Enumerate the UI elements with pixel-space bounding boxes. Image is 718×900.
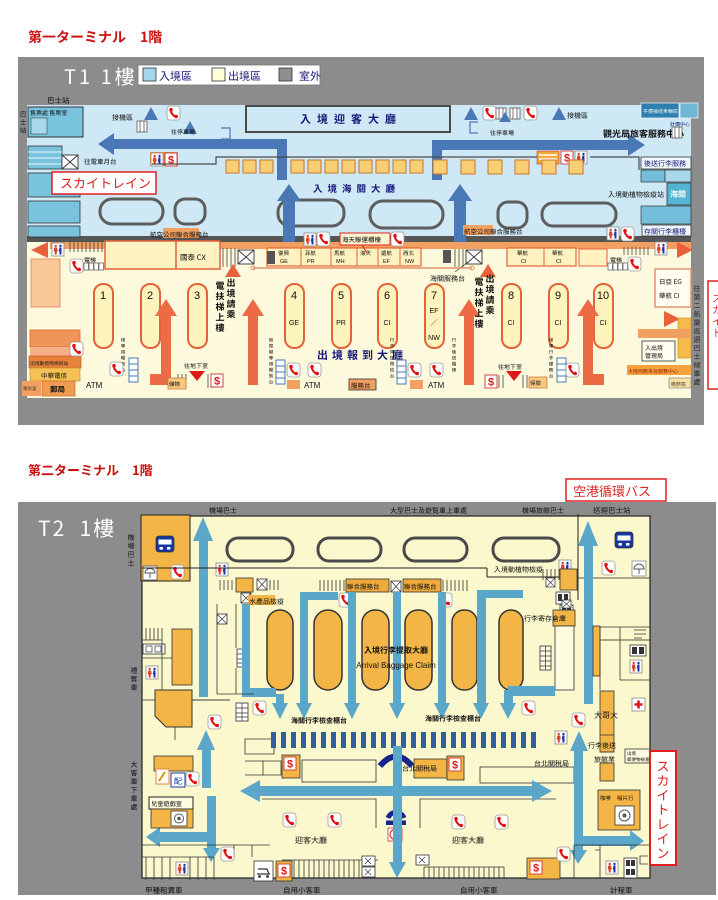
svg-text:10: 10 <box>597 290 609 302</box>
svg-text:CI: CI <box>600 320 607 327</box>
svg-text:2: 2 <box>147 290 153 302</box>
svg-text:CI: CI <box>556 259 562 265</box>
svg-text:ATM: ATM <box>304 381 321 390</box>
svg-text:GE: GE <box>280 259 288 265</box>
svg-text:1: 1 <box>100 290 106 302</box>
svg-text:EF: EF <box>383 259 391 265</box>
svg-text:CI: CI <box>384 320 391 327</box>
svg-text:Arrival Baggage Claim: Arrival Baggage Claim <box>356 661 436 670</box>
svg-text:ATM: ATM <box>86 381 103 390</box>
svg-text:EF: EF <box>430 308 439 315</box>
svg-text:NW: NW <box>428 335 440 342</box>
svg-text:PR: PR <box>307 259 315 265</box>
svg-text:GE: GE <box>289 320 299 327</box>
svg-text:MH: MH <box>336 259 345 265</box>
svg-text:8: 8 <box>508 290 514 302</box>
svg-text:3: 3 <box>194 290 200 302</box>
svg-text:CI: CI <box>508 320 515 327</box>
svg-text:CI: CI <box>555 320 562 327</box>
svg-text:PR: PR <box>336 320 346 327</box>
svg-text:7: 7 <box>431 290 437 302</box>
svg-text:NW: NW <box>405 259 415 265</box>
svg-text:4: 4 <box>291 290 297 302</box>
svg-text:ATM: ATM <box>428 381 445 390</box>
svg-text:9: 9 <box>555 290 561 302</box>
svg-text:5: 5 <box>338 290 344 302</box>
svg-text:CI: CI <box>521 259 527 265</box>
svg-text:6: 6 <box>384 290 390 302</box>
